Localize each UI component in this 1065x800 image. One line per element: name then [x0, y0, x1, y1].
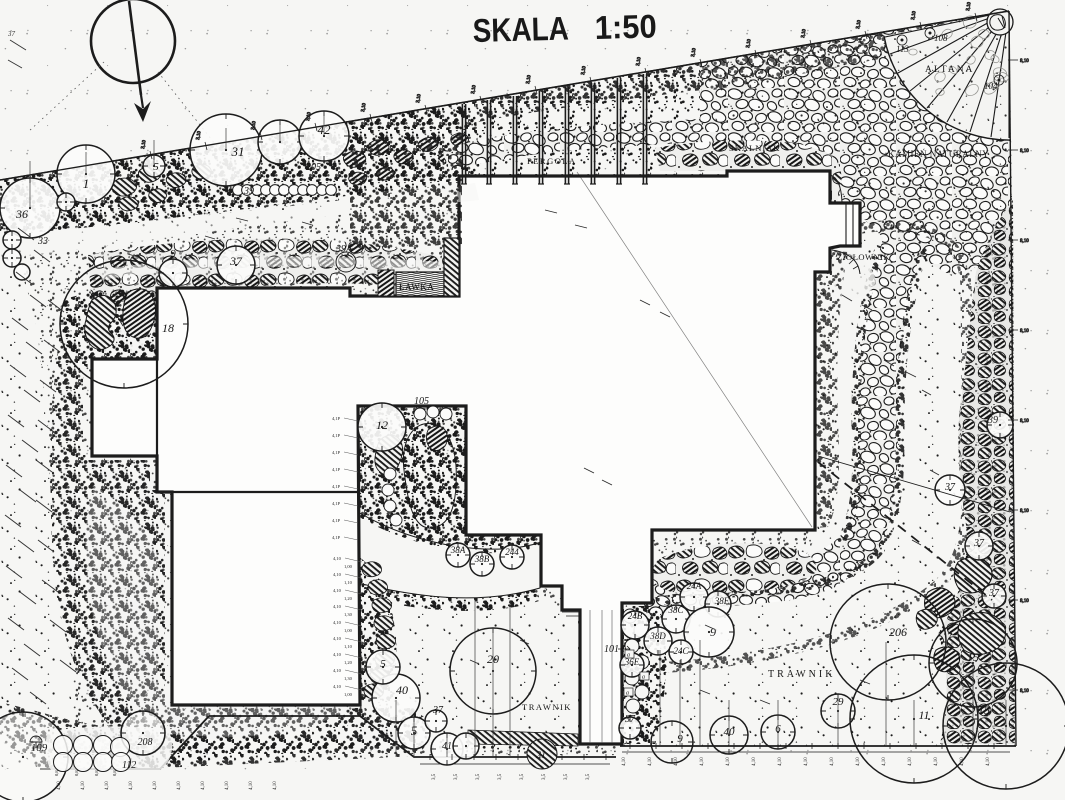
svg-text:11: 11 — [918, 708, 929, 722]
svg-text:4,10: 4,10 — [674, 757, 679, 766]
svg-text:8,10: 8,10 — [1020, 329, 1029, 334]
svg-text:4,10: 4,10 — [986, 757, 991, 766]
svg-text:4,10: 4,10 — [856, 757, 861, 766]
svg-text:112: 112 — [122, 760, 136, 771]
svg-text:105: 105 — [414, 396, 429, 407]
svg-text:4,10: 4,10 — [622, 757, 627, 766]
svg-text:5: 5 — [380, 658, 386, 670]
svg-text:37: 37 — [988, 588, 1000, 599]
svg-text:8,10: 8,10 — [1020, 419, 1029, 424]
svg-text:39: 39 — [243, 186, 254, 197]
svg-text:9: 9 — [170, 248, 176, 260]
svg-text:104: 104 — [984, 81, 998, 91]
svg-text:38B: 38B — [474, 554, 490, 564]
svg-text:108: 108 — [934, 33, 948, 43]
svg-text:4,10: 4,10 — [726, 757, 731, 766]
svg-text:a: a — [626, 691, 629, 697]
svg-text:18: 18 — [162, 321, 174, 335]
svg-text:38C: 38C — [667, 605, 684, 615]
svg-text:4,10: 4,10 — [830, 757, 835, 766]
svg-text:4,10: 4,10 — [129, 781, 134, 790]
svg-text:8,10: 8,10 — [1020, 149, 1029, 154]
svg-text:39: 39 — [987, 415, 998, 426]
svg-text:4,10: 4,10 — [908, 757, 913, 766]
svg-text:4,10: 4,10 — [752, 757, 757, 766]
svg-text:38E: 38E — [714, 596, 730, 606]
svg-text:8,10: 8,10 — [1020, 689, 1029, 694]
svg-text:113: 113 — [896, 44, 909, 54]
svg-text:3,5: 3,5 — [476, 773, 481, 780]
svg-text:ŁAWKA: ŁAWKA — [399, 282, 434, 292]
svg-text:4,10: 4,10 — [153, 781, 158, 790]
svg-text:244: 244 — [505, 547, 519, 557]
svg-text:3,5: 3,5 — [432, 773, 437, 780]
svg-text:24C: 24C — [673, 646, 689, 656]
svg-text:4,10: 4,10 — [105, 781, 110, 790]
svg-text:3,5: 3,5 — [564, 773, 569, 780]
svg-text:36: 36 — [15, 207, 28, 221]
svg-text:a: a — [627, 653, 630, 659]
svg-text:SKALA: SKALA — [472, 9, 569, 49]
svg-text:24B: 24B — [628, 611, 643, 621]
svg-text:4,10: 4,10 — [81, 781, 86, 790]
svg-text:TRAWNIK: TRAWNIK — [522, 702, 572, 712]
svg-text:4,10: 4,10 — [648, 757, 653, 766]
svg-text:4,10: 4,10 — [934, 757, 939, 766]
svg-text:21: 21 — [536, 750, 546, 761]
svg-text:15: 15 — [967, 650, 979, 664]
svg-text:4,10: 4,10 — [960, 757, 965, 766]
svg-text:4,10: 4,10 — [225, 781, 230, 790]
svg-text:4,10: 4,10 — [882, 757, 887, 766]
svg-text:4,10: 4,10 — [249, 781, 254, 790]
svg-text:KAMIEŃ NATURALNY: KAMIEŃ NATURALNY — [888, 149, 989, 159]
svg-text:a: a — [642, 675, 645, 681]
svg-text:38A: 38A — [450, 545, 466, 555]
svg-text:4,10: 4,10 — [201, 781, 206, 790]
svg-text:4,10: 4,10 — [177, 781, 182, 790]
svg-text:208: 208 — [138, 737, 153, 748]
svg-text:ALTANA: ALTANA — [925, 65, 974, 75]
svg-text:37: 37 — [973, 538, 985, 549]
svg-text:1: 1 — [83, 176, 90, 191]
svg-text:TRAWNIK: TRAWNIK — [768, 669, 835, 680]
svg-text:3,5: 3,5 — [520, 773, 525, 780]
svg-text:31: 31 — [231, 144, 245, 159]
svg-text:37: 37 — [432, 705, 444, 716]
svg-text:8,10: 8,10 — [1020, 599, 1029, 604]
svg-text:37: 37 — [944, 482, 956, 493]
svg-text:33: 33 — [37, 236, 48, 247]
svg-text:4,10: 4,10 — [804, 757, 809, 766]
svg-text:9: 9 — [710, 625, 716, 639]
svg-text:37: 37 — [229, 254, 243, 268]
svg-text:PERGOLA: PERGOLA — [527, 156, 577, 166]
svg-text:206: 206 — [889, 625, 907, 639]
svg-text:ZIOŁOWNIK: ZIOŁOWNIK — [837, 252, 890, 262]
svg-text:36E: 36E — [624, 657, 640, 667]
svg-text:8,10: 8,10 — [1020, 59, 1029, 64]
svg-text:3,5: 3,5 — [454, 773, 459, 780]
svg-text:4,10: 4,10 — [700, 757, 705, 766]
svg-text:12: 12 — [376, 418, 388, 432]
svg-text:3,5: 3,5 — [542, 773, 547, 780]
svg-text:24A: 24A — [687, 581, 702, 591]
svg-text:101: 101 — [604, 644, 619, 655]
svg-text:3,5: 3,5 — [498, 773, 503, 780]
svg-text:8,10: 8,10 — [1020, 509, 1029, 514]
svg-text:15: 15 — [978, 703, 990, 717]
svg-text:4,10: 4,10 — [778, 757, 783, 766]
svg-text:3,5: 3,5 — [586, 773, 591, 780]
svg-text:37: 37 — [624, 714, 636, 725]
svg-text:109: 109 — [31, 742, 48, 754]
svg-text:4,10: 4,10 — [57, 781, 62, 790]
svg-text:1:50: 1:50 — [594, 7, 657, 46]
svg-text:8,10: 8,10 — [1020, 239, 1029, 244]
svg-text:40: 40 — [396, 683, 408, 697]
svg-text:205: 205 — [306, 162, 321, 173]
svg-text:38D: 38D — [649, 631, 666, 641]
svg-text:4,10: 4,10 — [273, 781, 278, 790]
svg-text:SKALNIAK: SKALNIAK — [729, 143, 780, 153]
svg-text:37: 37 — [7, 30, 16, 38]
